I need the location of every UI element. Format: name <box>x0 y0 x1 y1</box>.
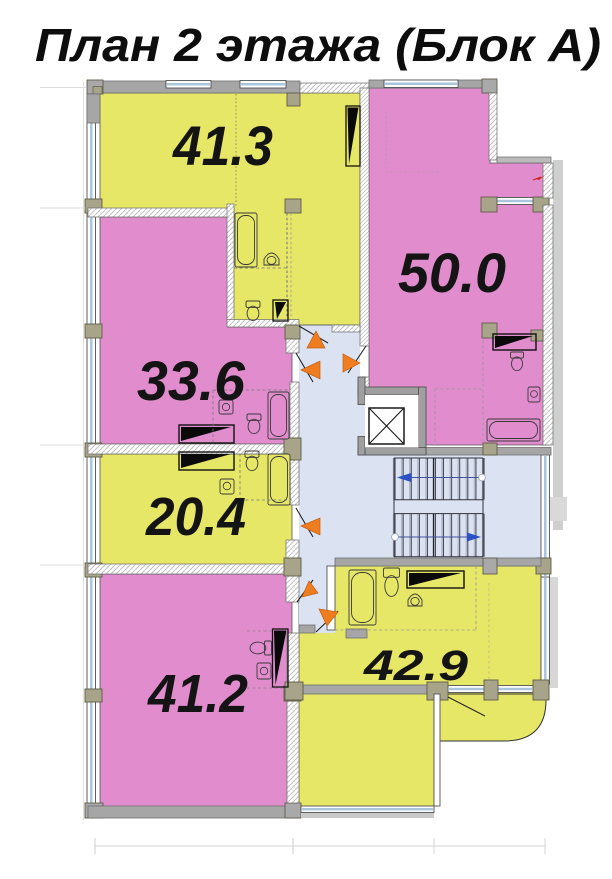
svg-text:41.3: 41.3 <box>172 114 273 177</box>
svg-text:План 2 этажа (Блок А): План 2 этажа (Блок А) <box>35 19 601 71</box>
svg-text:33.6: 33.6 <box>137 349 246 412</box>
svg-text:50.0: 50.0 <box>398 241 506 304</box>
svg-text:42.9: 42.9 <box>363 642 468 690</box>
svg-text:20.4: 20.4 <box>145 487 246 547</box>
svg-text:41.2: 41.2 <box>147 664 248 724</box>
